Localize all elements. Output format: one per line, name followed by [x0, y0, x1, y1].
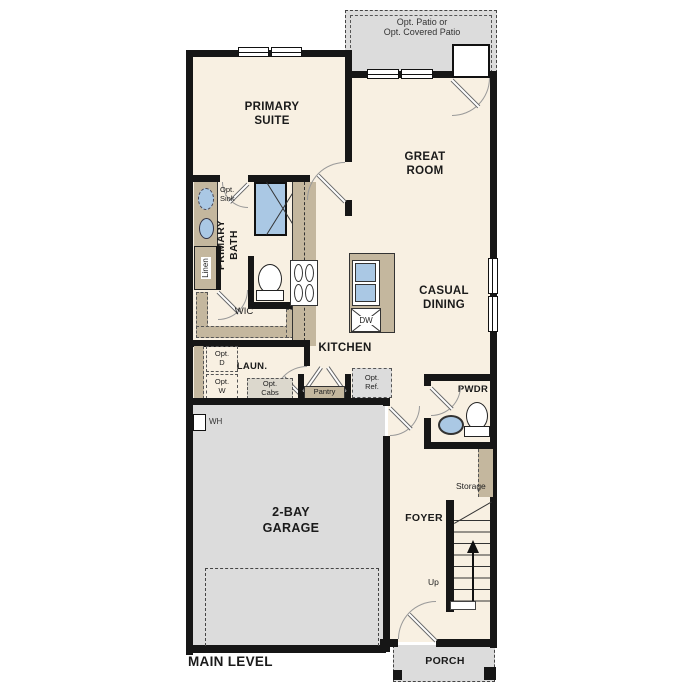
wall-suite-right — [345, 50, 352, 162]
kitchen-label: KITCHEN — [310, 341, 380, 355]
wall-suite-right-stub — [345, 200, 352, 216]
wall-pwdr-bottom — [424, 442, 497, 449]
opt-ref-box: Opt. Ref. — [352, 368, 392, 398]
wall-garage-right-top — [383, 398, 390, 406]
primary-suite-label: PRIMARY SUITE — [232, 100, 312, 129]
water-heater — [193, 414, 206, 431]
window-dining-2 — [488, 296, 498, 332]
laundry-side-cab — [194, 346, 204, 399]
porch-post-left — [393, 670, 402, 680]
opt-ref-label: Opt. Ref. — [365, 374, 379, 391]
window-greatroom-1 — [367, 69, 399, 79]
wall-top-suite — [186, 50, 352, 57]
linen-label: Linen — [201, 257, 210, 279]
stove-icon — [290, 260, 318, 306]
wall-linen-right — [216, 246, 221, 290]
porch-post-right — [484, 667, 496, 680]
window-greatroom-2 — [401, 69, 433, 79]
opt-d-label: Opt. D — [215, 350, 229, 367]
floor-plan: Opt. Patio or Opt. Covered Patio PORCH P… — [0, 0, 687, 687]
wall-stair-left — [446, 500, 454, 612]
up-label: Up — [428, 578, 448, 588]
opt-w-label: Opt. W — [215, 378, 229, 395]
wic-label: WIC — [226, 307, 262, 318]
patio-door-frame — [452, 44, 490, 78]
wall-shower-top — [248, 175, 310, 182]
wall-toilet-left — [248, 256, 254, 308]
wall-pwdr-top — [424, 374, 497, 381]
dishwasher: DW — [351, 308, 381, 332]
wall-bath-top-left — [186, 175, 220, 182]
opt-sink-label: Opt. Sink — [220, 186, 248, 203]
stair-arrow-head — [467, 540, 479, 553]
pantry-label: Pantry — [314, 388, 336, 397]
laundry-label: LAUN. — [233, 361, 271, 373]
great-room-label: GREAT ROOM — [394, 150, 456, 179]
foyer-label: FOYER — [398, 512, 450, 525]
wall-laundry-top — [186, 340, 310, 347]
main-level-label: MAIN LEVEL — [188, 654, 308, 671]
wall-right — [490, 71, 497, 648]
stair-landing — [450, 601, 476, 610]
wall-garage-top — [186, 398, 390, 405]
window-suite-2 — [271, 47, 302, 57]
bath-toilet-tank — [256, 290, 284, 301]
wall-left — [186, 50, 193, 655]
window-suite-1 — [238, 47, 269, 57]
wall-garage-right — [383, 436, 390, 652]
casual-dining-label: CASUAL DINING — [410, 284, 478, 313]
storage-label: Storage — [456, 482, 496, 492]
wic-shelf-bottom — [196, 326, 298, 338]
dw-label: DW — [352, 316, 380, 325]
stair-arrow-shaft — [472, 552, 474, 606]
pwdr-sink-icon — [438, 415, 464, 435]
garage-label: 2-BAY GARAGE — [241, 505, 341, 536]
opt-cabs-box: Opt. Cabs — [247, 378, 293, 399]
pwdr-toilet-tank — [464, 426, 490, 437]
wall-laundry-right — [304, 340, 310, 366]
wall-porch-top-right — [436, 639, 497, 647]
wall-pwdr-left-top — [424, 374, 431, 386]
wh-label: WH — [209, 417, 229, 426]
porch-label: PORCH — [415, 655, 475, 668]
wall-garage-bottom — [186, 645, 386, 653]
opt-washer-box: Opt. W — [206, 374, 238, 399]
window-dining-1 — [488, 258, 498, 294]
opt-cabs-label: Opt. Cabs — [261, 380, 279, 397]
patio-label: Opt. Patio or Opt. Covered Patio — [362, 17, 482, 38]
garage-door-outline — [205, 568, 379, 646]
island-sink-basin-2 — [355, 284, 376, 302]
island-sink-basin-1 — [355, 263, 376, 282]
wall-pantry-right — [345, 374, 351, 400]
